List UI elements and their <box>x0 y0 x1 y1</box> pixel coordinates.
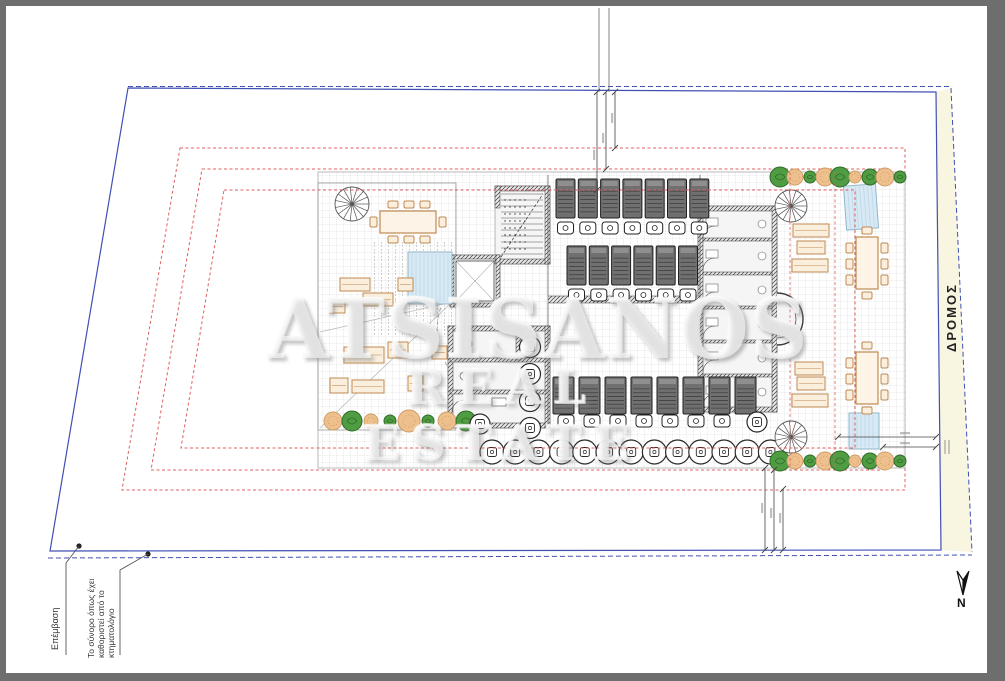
north-arrow <box>957 571 969 595</box>
window-frame: ATSISANOS REAL ESTATE ΔΡΟΜΟΣ N Επέμβαση … <box>0 0 1005 681</box>
annotation-leaders <box>66 543 151 655</box>
site-plan-drawing <box>0 0 1005 681</box>
